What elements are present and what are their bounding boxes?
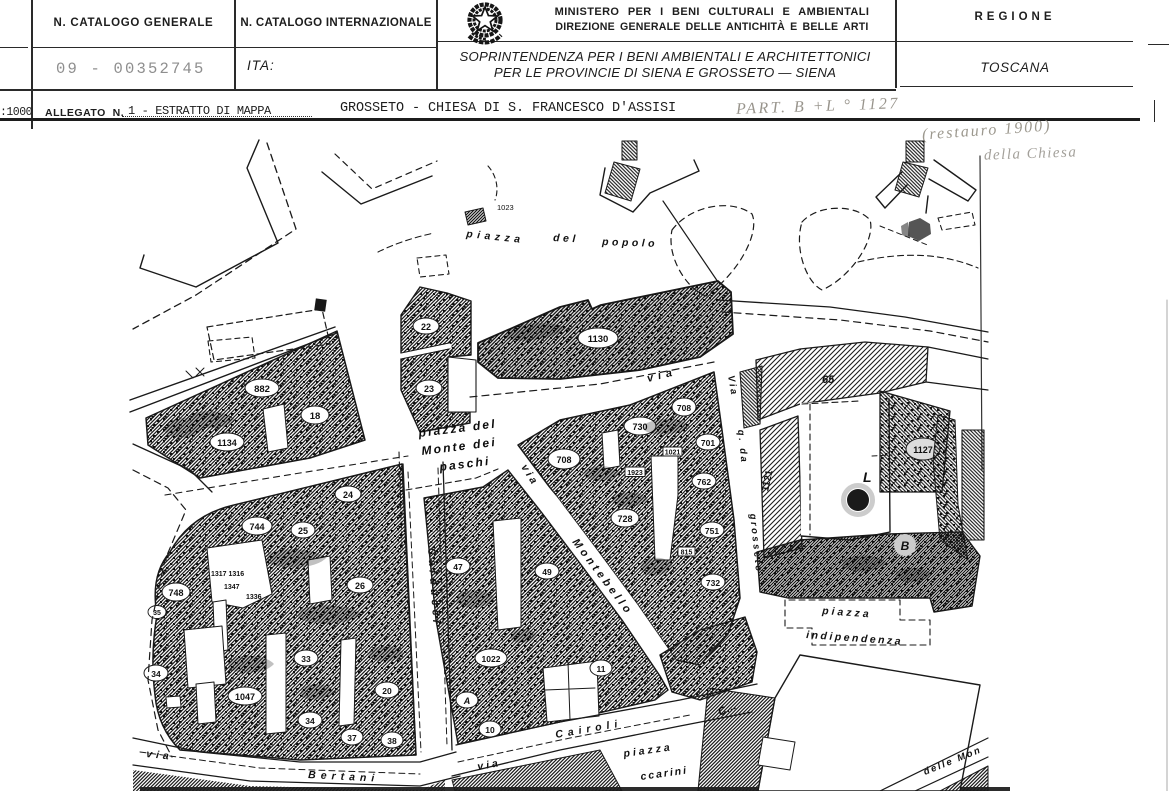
svg-text:732: 732 [706, 578, 720, 588]
svg-text:815: 815 [681, 550, 693, 557]
svg-text:1336: 1336 [246, 594, 262, 601]
svg-text:20: 20 [382, 686, 392, 696]
svg-text:1047: 1047 [235, 692, 255, 702]
svg-text:24: 24 [343, 490, 353, 500]
svg-text:paschi: paschi [438, 454, 492, 474]
svg-text:708: 708 [677, 403, 691, 413]
svg-text:762: 762 [697, 477, 711, 487]
svg-text:751: 751 [705, 526, 719, 536]
svg-text:piazza: piazza [821, 605, 872, 620]
svg-text:1134: 1134 [217, 438, 237, 448]
svg-text:1347: 1347 [224, 584, 240, 591]
svg-text:piazza: piazza [465, 228, 525, 246]
svg-text:Bertani: Bertani [308, 769, 380, 785]
svg-text:ccarini: ccarini [640, 764, 689, 783]
svg-text:1127: 1127 [913, 445, 933, 455]
svg-text:22: 22 [421, 322, 431, 332]
svg-text:49: 49 [542, 567, 552, 577]
svg-text:701: 701 [701, 438, 715, 448]
svg-text:34: 34 [305, 716, 315, 726]
svg-text:728: 728 [617, 514, 632, 524]
svg-text:47: 47 [453, 562, 463, 572]
svg-text:11: 11 [597, 664, 606, 674]
svg-text:1923: 1923 [627, 470, 643, 477]
svg-text:10: 10 [485, 725, 495, 735]
svg-text:23: 23 [424, 384, 434, 394]
svg-text:q. da: q. da [735, 429, 750, 465]
svg-text:65: 65 [822, 374, 835, 386]
svg-text:1023: 1023 [497, 203, 514, 212]
svg-text:piazza: piazza [622, 741, 674, 760]
svg-text:1022: 1022 [482, 654, 501, 664]
svg-text:25: 25 [298, 526, 308, 536]
svg-text:744: 744 [249, 522, 264, 532]
svg-text:L: L [863, 469, 872, 485]
svg-text:B: B [901, 539, 910, 553]
svg-text:1021: 1021 [665, 450, 681, 457]
svg-text:708: 708 [556, 455, 571, 465]
svg-text:26: 26 [355, 581, 365, 591]
svg-text:882: 882 [254, 384, 270, 395]
svg-text:37: 37 [347, 733, 357, 743]
svg-text:748: 748 [168, 588, 183, 598]
svg-text:Via: Via [725, 375, 740, 398]
svg-text:via: via [646, 366, 678, 385]
svg-text:1130: 1130 [588, 334, 609, 345]
svg-text:via: via [146, 748, 174, 763]
svg-text:34: 34 [151, 669, 161, 679]
svg-text:18: 18 [310, 411, 321, 422]
svg-text:38: 38 [387, 736, 397, 746]
svg-text:del: del [553, 232, 579, 245]
svg-text:A: A [463, 696, 471, 706]
svg-text:1317 1316: 1317 1316 [211, 571, 244, 578]
svg-text:popolo: popolo [601, 236, 658, 250]
svg-text:33: 33 [301, 654, 311, 664]
